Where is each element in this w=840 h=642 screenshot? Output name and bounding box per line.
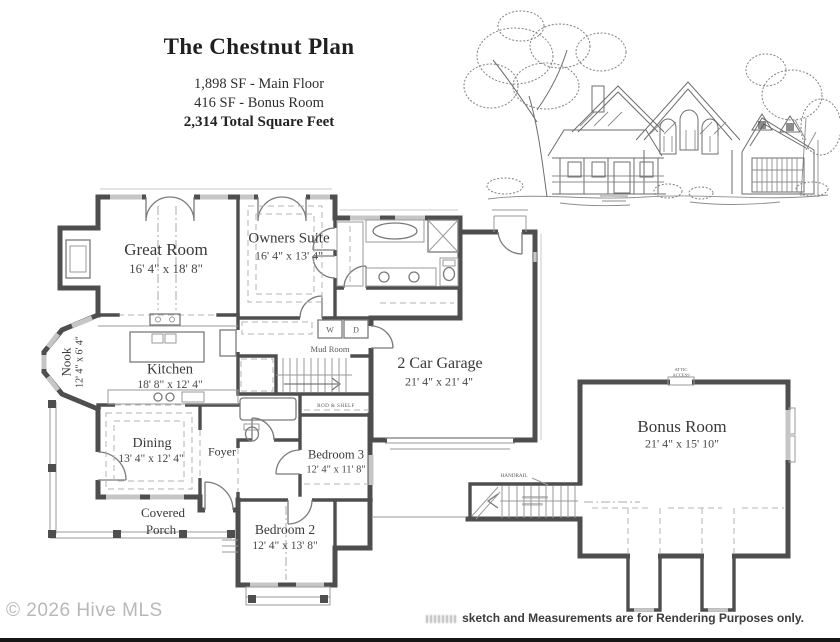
nook-label-group: Nook 12' 4" x 6' 4"	[59, 336, 86, 388]
great-room-label: Great Room	[124, 240, 208, 260]
garage-dims: 21' 4" x 21' 4"	[405, 375, 473, 390]
foyer-label: Foyer	[208, 445, 236, 460]
rod-shelf-label: ROD & SHELF	[317, 403, 355, 409]
nook-dims: 12' 4" x 6' 4"	[75, 336, 86, 388]
owners-suite-label: Owners Suite	[248, 231, 329, 248]
stair-note-illegible	[522, 496, 548, 499]
main-stairs	[241, 358, 352, 392]
bonus-room-dims: 21' 4" x 15' 10"	[645, 437, 719, 452]
kitchen-label: Kitchen	[147, 362, 193, 379]
garage-label: 2 Car Garage	[397, 355, 482, 373]
plan-title: The Chestnut Plan	[118, 34, 400, 60]
porch-column	[179, 530, 187, 538]
bonus-stairs: HANDRAIL	[468, 473, 580, 519]
porch-column	[113, 530, 121, 538]
kitchen-dims: 18' 8" x 12' 4"	[137, 379, 202, 391]
illegible-annotation	[426, 615, 458, 623]
area-total: 2,314 Total Square Feet	[118, 114, 400, 131]
bedroom3-closet: ROD & SHELF	[304, 403, 368, 410]
bedroom-2-label: Bedroom 2	[255, 522, 315, 538]
porch-column	[48, 464, 56, 472]
bonus-room-label: Bonus Room	[637, 417, 726, 437]
attic-access-label-2: ACCESS	[672, 373, 690, 378]
area-main-floor: 1,898 SF - Main Floor	[118, 76, 400, 93]
bedroom-3-dims: 12' 4" x 11' 8"	[306, 465, 365, 476]
porch-column	[48, 530, 56, 538]
mud-room-label: Mud Room	[311, 344, 350, 354]
covered-porch-label-1: Covered	[141, 505, 185, 521]
refrigerator	[220, 330, 236, 356]
floor-plan-sheet: The Chestnut Plan 1,898 SF - Main Floor …	[0, 0, 840, 642]
bedroom-3-label: Bedroom 3	[308, 448, 364, 463]
stair-note-illegible	[522, 503, 543, 506]
nook-label: Nook	[59, 336, 75, 388]
handrail-label: HANDRAIL	[500, 473, 527, 479]
owners-suite-dims: 16' 4" x 13' 4"	[255, 249, 323, 264]
hall-bathtub	[240, 398, 296, 420]
covered-porch-structure	[48, 400, 238, 552]
house-sketch-illustration	[464, 11, 840, 206]
dining-label: Dining	[133, 436, 172, 452]
covered-porch-label-2: Porch	[146, 522, 176, 538]
title-block: The Chestnut Plan 1,898 SF - Main Floor …	[118, 34, 400, 131]
attic-access-label-1: ATTIC	[674, 367, 687, 372]
porch-column	[227, 530, 235, 538]
bedroom2-stoop	[246, 587, 330, 605]
double-vanity	[366, 268, 436, 286]
disclaimer-label: sketch and Measurements are for Renderin…	[462, 611, 804, 625]
hive-mls-watermark: © 2026 Hive MLS	[6, 600, 163, 622]
dining-dims: 13' 4" x 12' 4"	[118, 453, 183, 465]
kitchen-island	[130, 332, 204, 362]
mud-room-fixtures: W D	[242, 320, 368, 338]
fireplace	[66, 240, 90, 278]
hall-bath-fixtures	[240, 398, 296, 441]
dryer-label: D	[353, 326, 359, 335]
toilet	[444, 268, 455, 281]
disclaimer-text: sketch and Measurements are for Renderin…	[426, 611, 804, 625]
porch-column	[48, 400, 56, 408]
bonus-room-plan: ATTIC ACCESS HANDRAIL	[373, 367, 795, 610]
bedroom-2-dims: 12' 4" x 13' 8"	[252, 540, 317, 552]
kitchen-sink	[154, 393, 162, 401]
bottom-edge-bar	[0, 638, 840, 642]
washer-label: W	[326, 326, 334, 335]
great-room-dims: 16' 4" x 18' 8"	[129, 261, 203, 277]
area-bonus-room: 416 SF - Bonus Room	[118, 95, 400, 112]
mud-bench	[242, 322, 312, 334]
